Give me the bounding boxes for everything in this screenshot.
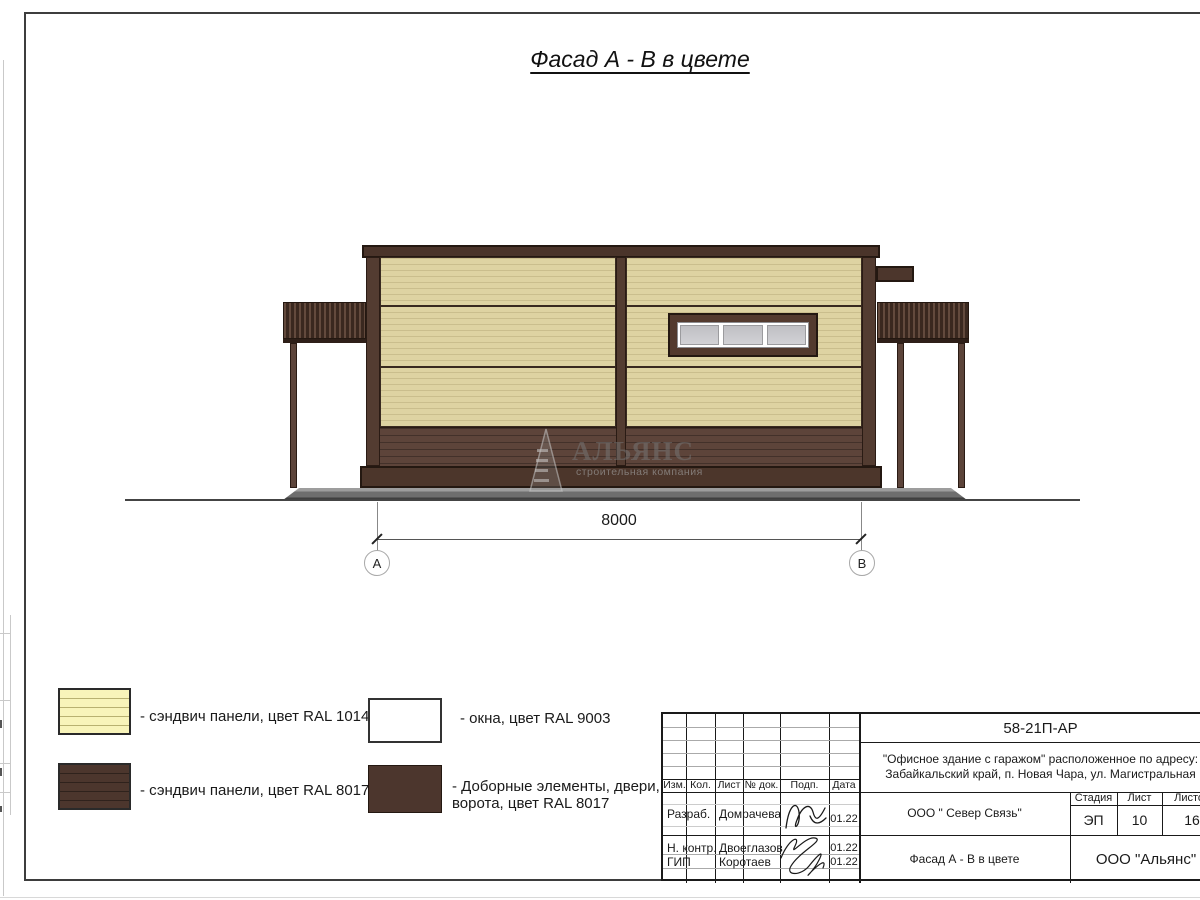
margin-line	[0, 633, 10, 634]
canopy-post-right-inner	[897, 343, 904, 488]
wall-panel-left	[380, 257, 616, 427]
title-block-line	[663, 826, 859, 827]
stage-value: ЭП	[1070, 805, 1117, 835]
sheet-label: Лист	[1117, 792, 1162, 805]
canopy-post-right-outer	[958, 343, 965, 488]
watermark-subtitle: строительная компания	[576, 466, 703, 478]
title-block-line	[663, 753, 859, 754]
drawing-sheet: Фасад А - В в цвете	[0, 0, 1200, 900]
extension-line-b	[861, 502, 862, 551]
corner-pilaster-left	[366, 257, 380, 466]
margin-line	[0, 763, 10, 764]
doc-number: 58-21П-АР	[859, 714, 1200, 742]
title-block-line	[663, 766, 859, 767]
margin-line	[3, 60, 4, 896]
legend-label: - окна, цвет RAL 9003	[460, 710, 610, 727]
sheet-edge-line	[0, 897, 1200, 898]
window-frame	[677, 322, 809, 348]
legend-swatch-ral8017-doors	[368, 765, 442, 813]
margin-line	[10, 615, 11, 815]
signature-icon	[775, 832, 833, 887]
canopy-post-left	[290, 343, 297, 488]
row-date: 01.22	[829, 855, 859, 869]
title-block-line	[663, 804, 859, 805]
center-pilaster	[616, 257, 626, 466]
title-block: Изм. Кол. Лист № док. Подп. Дата Разраб.…	[661, 712, 1200, 881]
legend-label: - сэндвич панели, цвет RAL 1014	[140, 708, 369, 725]
legend-label: - сэндвич панели, цвет RAL 8017	[140, 782, 369, 799]
sheet-value: 10	[1117, 805, 1162, 835]
dimension-label: 8000	[569, 512, 669, 530]
col-data: Дата	[829, 779, 859, 792]
sheet-name: Фасад А - В в цвете	[859, 835, 1070, 883]
window-pane	[680, 325, 719, 345]
legend-swatch-ral1014	[58, 688, 131, 735]
margin-mark	[0, 720, 2, 728]
axis-marker-b: В	[849, 550, 875, 576]
title-block-line	[663, 740, 859, 741]
canopy-right	[877, 302, 969, 339]
canopy-right-edge	[877, 339, 969, 343]
corner-pilaster-right	[862, 257, 876, 466]
col-podp: Подп.	[780, 779, 829, 792]
project-description: "Офисное здание с гаражом" расположенное…	[859, 742, 1200, 792]
legend-swatch-ral9003	[368, 698, 442, 743]
margin-mark	[0, 806, 2, 812]
col-izm: Изм.	[663, 779, 686, 792]
sheets-value: 16	[1162, 805, 1200, 835]
legend-swatch-ral8017-panels	[58, 763, 131, 810]
company-name: ООО "Альянс"	[1070, 835, 1200, 883]
project-line1: "Офисное здание с гаражом" расположенное…	[883, 752, 1198, 767]
project-line2: Забайкальский край, п. Новая Чара, ул. М…	[885, 767, 1195, 782]
title-block-line	[663, 727, 859, 728]
sheets-label: Листов	[1162, 792, 1200, 805]
legend-label: - Доборные элементы, двери, ворота, цвет…	[452, 778, 660, 812]
extension-line-a	[377, 502, 378, 551]
stage-label: Стадия	[1070, 792, 1117, 805]
margin-mark	[0, 768, 2, 776]
watermark-logo-icon	[528, 427, 564, 493]
ground-line	[125, 499, 1080, 501]
facade-title: Фасад А - В в цвете	[440, 46, 840, 73]
watermark-title: АЛЬЯНС	[572, 436, 694, 467]
row-role: ГИП	[667, 855, 715, 869]
row-date: 01.22	[829, 812, 859, 826]
dimension-line	[377, 539, 862, 540]
window-pane	[767, 325, 806, 345]
canopy-left	[283, 302, 366, 339]
margin-line	[0, 700, 10, 701]
col-doc: № док.	[743, 779, 780, 792]
organization: ООО " Север Связь"	[859, 792, 1070, 835]
axis-marker-a: А	[364, 550, 390, 576]
row-date: 01.22	[829, 841, 859, 855]
fascia-beam	[876, 266, 914, 282]
window-pane	[723, 325, 762, 345]
window	[668, 313, 818, 357]
row-role: Разраб.	[667, 807, 715, 821]
col-list: Лист	[715, 779, 743, 792]
row-role: Н. контр.	[667, 841, 725, 855]
col-kol: Кол.	[686, 779, 715, 792]
margin-line	[0, 792, 10, 793]
